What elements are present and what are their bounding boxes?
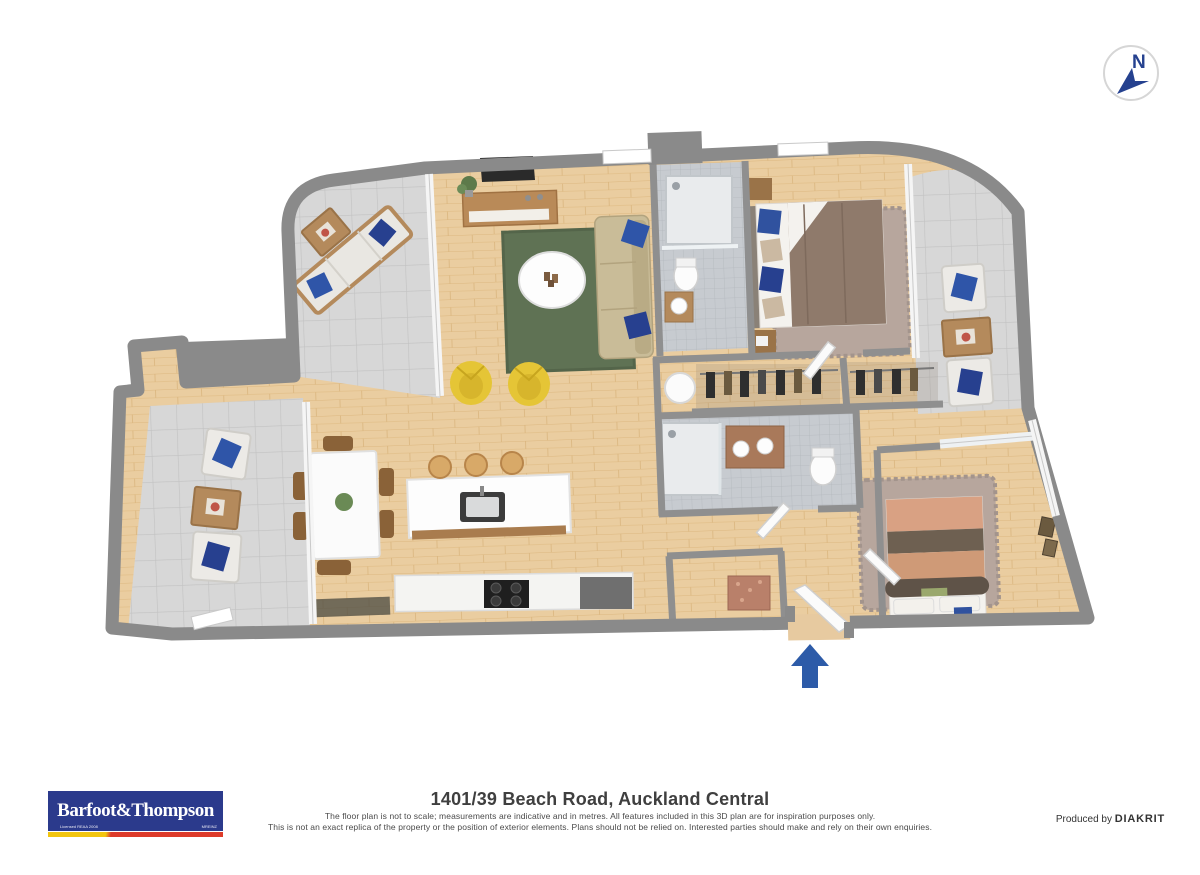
bar-stool <box>465 454 487 476</box>
produced-by: Produced by DIAKRIT <box>1056 813 1165 825</box>
disclaimer-line-1: The floor plan is not to scale; measurem… <box>0 811 1200 821</box>
toilet <box>810 453 836 485</box>
wall-art <box>1042 539 1057 557</box>
produced-by-label: Produced by <box>1056 814 1115 825</box>
master-bed <box>746 200 886 329</box>
wardrobe-corridor <box>665 362 938 408</box>
property-address-title: 1401/39 Beach Road, Auckland Central <box>0 789 1200 810</box>
outdoor-table <box>191 487 241 530</box>
bar-stool <box>501 452 523 474</box>
laundry <box>728 576 770 610</box>
sofa <box>595 215 654 359</box>
nightstand <box>748 178 772 200</box>
cooktop <box>484 580 529 608</box>
wall-art <box>1038 517 1055 538</box>
table-plant <box>335 493 353 511</box>
kitchen-island <box>407 474 571 539</box>
washing-machine <box>665 373 695 403</box>
compass: N <box>1103 45 1159 101</box>
balcony-right-furniture <box>941 264 993 407</box>
media-console <box>462 190 557 226</box>
kitchen-counter <box>395 572 633 611</box>
coffee-table <box>519 252 585 308</box>
bed-2 <box>882 496 990 618</box>
armchair-yellow-2 <box>508 362 550 406</box>
washer-dryer <box>728 576 770 610</box>
disclaimer-line-2: This is not an exact replica of the prop… <box>0 822 1200 832</box>
logo-stripe <box>48 832 223 837</box>
entrance-arrow <box>791 644 829 688</box>
floorplan-3d <box>88 120 1118 712</box>
window <box>603 149 651 164</box>
armchair-yellow-1 <box>450 361 492 405</box>
vanity-double <box>726 426 784 468</box>
window <box>778 142 828 156</box>
cabinet-dark <box>580 577 632 609</box>
compass-arrow-icon <box>1105 47 1161 103</box>
outdoor-table <box>942 317 992 356</box>
bar-stool <box>429 456 451 478</box>
floor-mat <box>312 597 391 618</box>
producer-brand: DIAKRIT <box>1115 813 1165 825</box>
vanity <box>665 292 693 322</box>
